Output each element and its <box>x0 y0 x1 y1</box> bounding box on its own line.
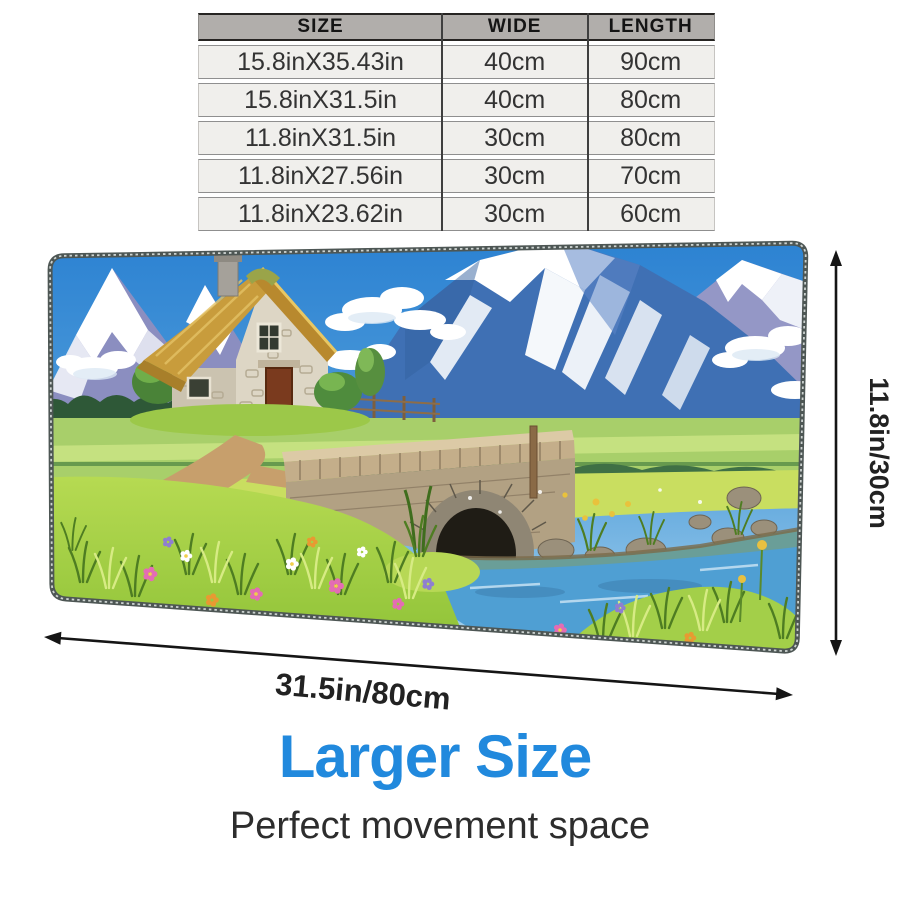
horizontal-dimension-label: 31.5in/80cm <box>274 666 452 715</box>
product-infographic: SIZE WIDE LENGTH 15.8inX35.43in 40cm 90c… <box>0 0 900 900</box>
vertical-dimension-label: 11.8in/30cm <box>864 377 894 529</box>
table-column-divider <box>441 13 443 231</box>
header-cell-wide: WIDE <box>442 15 587 39</box>
wide-cell: 30cm <box>442 198 587 230</box>
table-row: 11.8inX23.62in 30cm 60cm <box>198 197 715 231</box>
header-cell-length: LENGTH <box>587 15 714 39</box>
size-table-header-row: SIZE WIDE LENGTH <box>198 13 715 41</box>
table-column-divider <box>587 13 589 231</box>
table-row: 11.8inX31.5in 30cm 80cm <box>198 121 715 155</box>
size-cell: 11.8inX23.62in <box>199 198 442 230</box>
table-row: 15.8inX31.5in 40cm 80cm <box>198 83 715 117</box>
mousepad-illustration: 11.8in/30cm 31.5in/80cm <box>0 240 900 715</box>
length-cell: 60cm <box>587 198 714 230</box>
vertical-dimension-arrow <box>830 250 842 656</box>
size-cell: 15.8inX31.5in <box>199 84 442 116</box>
length-cell: 90cm <box>587 46 714 78</box>
table-row: 11.8inX27.56in 30cm 70cm <box>198 159 715 193</box>
wide-cell: 30cm <box>442 122 587 154</box>
footer-title: Larger Size <box>0 722 870 792</box>
size-cell: 15.8inX35.43in <box>199 46 442 78</box>
size-cell: 11.8inX31.5in <box>199 122 442 154</box>
size-cell: 11.8inX27.56in <box>199 160 442 192</box>
wide-cell: 40cm <box>442 84 587 116</box>
header-cell-size: SIZE <box>199 15 442 39</box>
size-table: SIZE WIDE LENGTH 15.8inX35.43in 40cm 90c… <box>198 13 715 231</box>
wide-cell: 40cm <box>442 46 587 78</box>
wide-cell: 30cm <box>442 160 587 192</box>
length-cell: 80cm <box>587 84 714 116</box>
length-cell: 70cm <box>587 160 714 192</box>
table-row: 15.8inX35.43in 40cm 90cm <box>198 45 715 79</box>
pad-artwork <box>36 240 819 655</box>
length-cell: 80cm <box>587 122 714 154</box>
footer-subtitle: Perfect movement space <box>0 802 880 850</box>
